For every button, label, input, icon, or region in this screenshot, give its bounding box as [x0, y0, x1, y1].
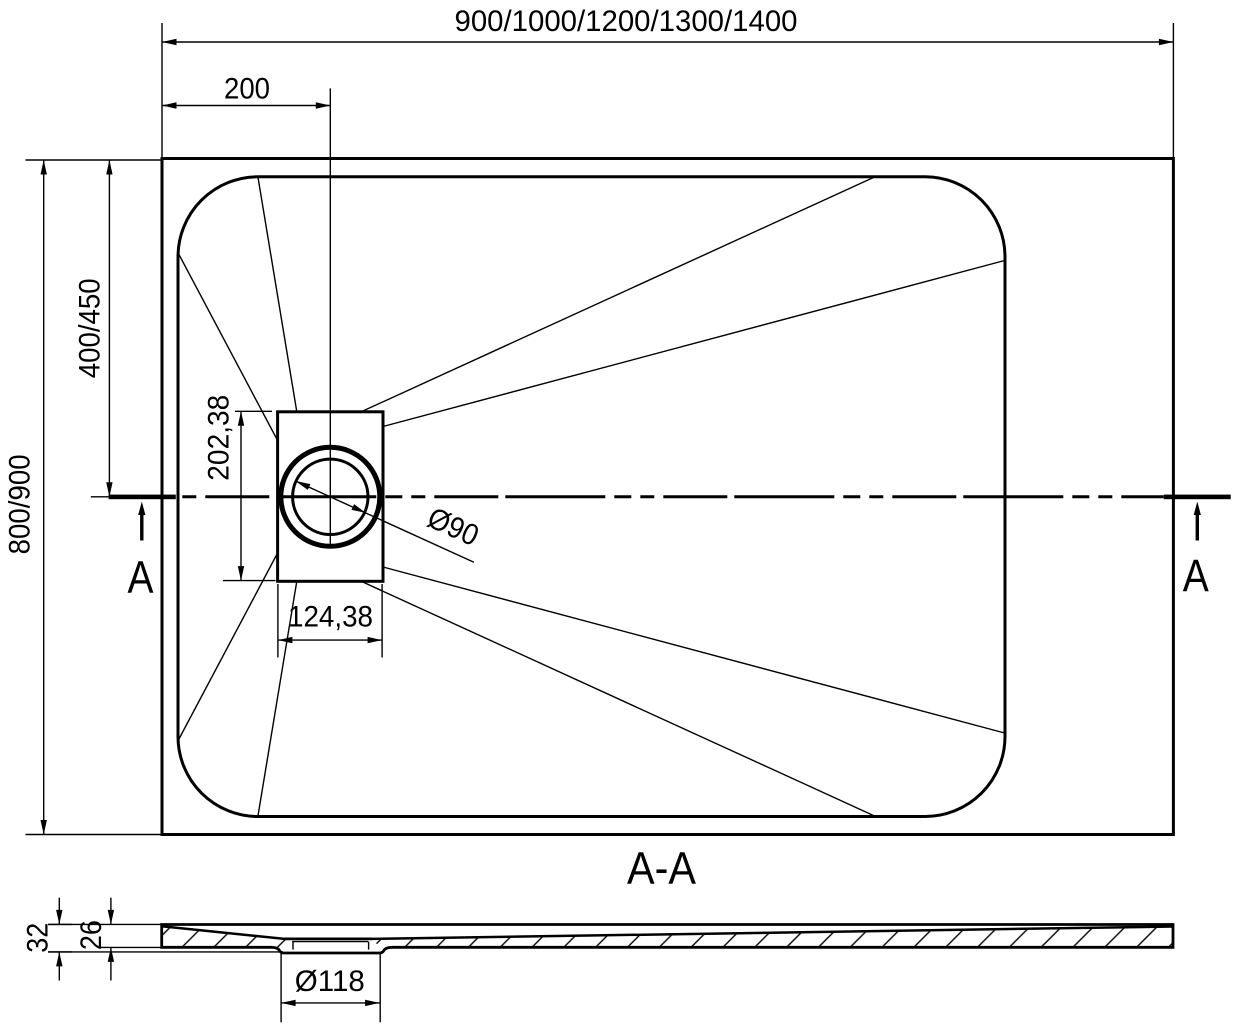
svg-text:32: 32	[22, 923, 55, 953]
svg-text:200: 200	[224, 73, 270, 106]
svg-text:A-A: A-A	[627, 843, 696, 894]
svg-text:A: A	[1183, 550, 1209, 601]
svg-text:800/900: 800/900	[4, 454, 37, 554]
svg-text:400/450: 400/450	[74, 278, 107, 378]
svg-text:900/1000/1200/1300/1400: 900/1000/1200/1300/1400	[455, 5, 798, 38]
svg-text:Ø118: Ø118	[295, 965, 365, 998]
svg-text:202,38: 202,38	[203, 395, 236, 481]
svg-text:A: A	[128, 552, 154, 603]
svg-text:124,38: 124,38	[288, 601, 373, 634]
